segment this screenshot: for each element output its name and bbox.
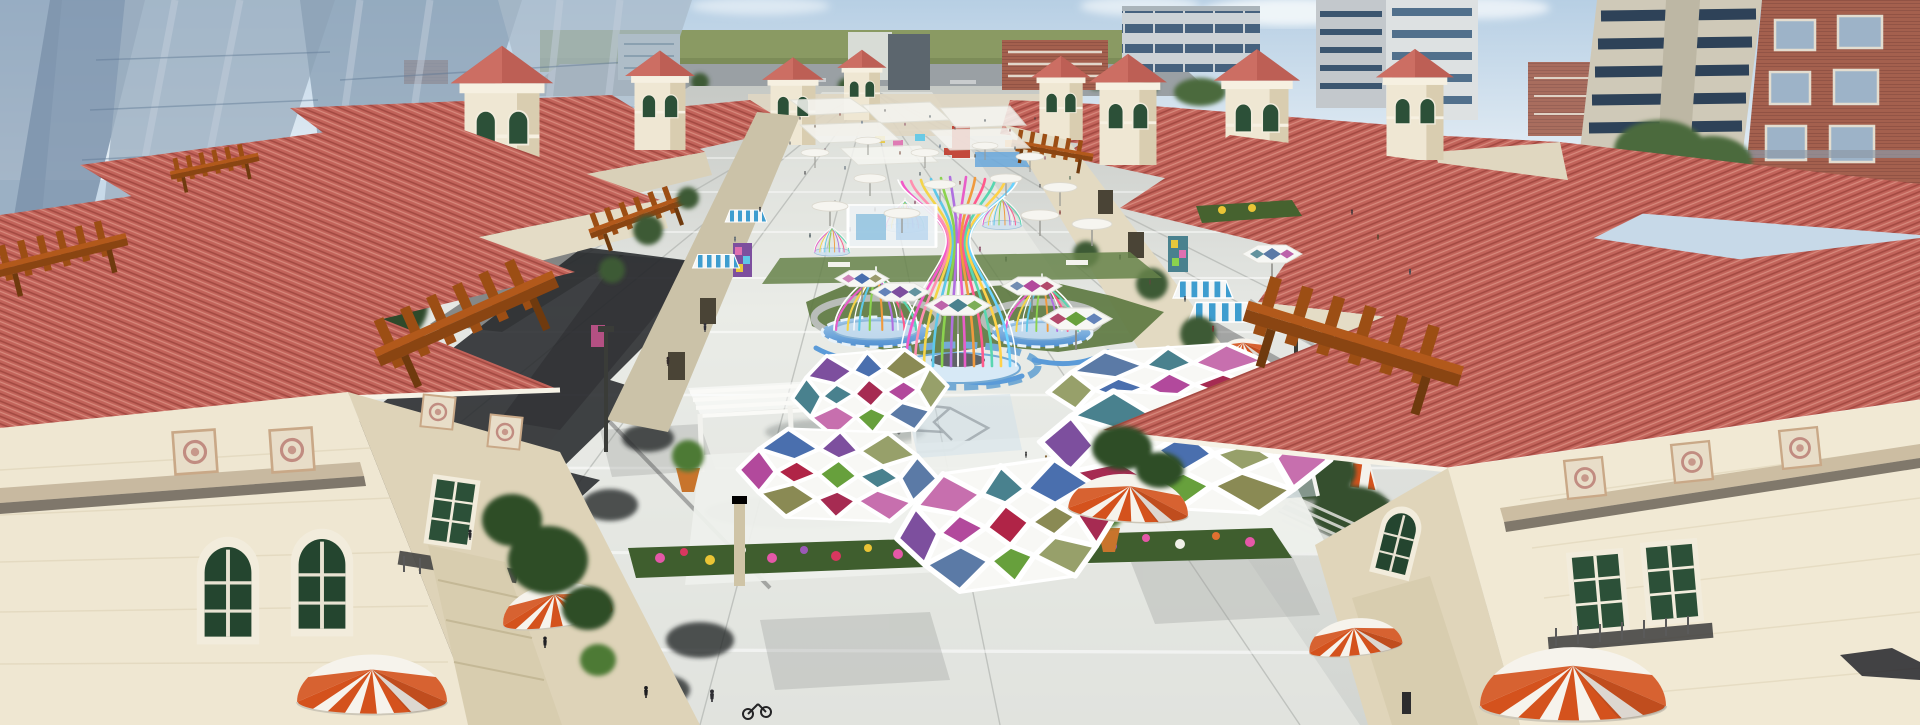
rosette-tile — [1564, 457, 1606, 499]
rosette-tile — [173, 430, 218, 475]
rosette-tile — [1671, 441, 1713, 483]
rosette-tile — [1779, 427, 1821, 469]
rosette-tile — [487, 414, 522, 449]
rosette-tile — [420, 394, 455, 429]
architectural-rendering: Aerial daytime rendering of a Mediterran… — [0, 0, 1920, 725]
plaza-rendering-canvas: Aerial daytime rendering of a Mediterran… — [0, 0, 1920, 725]
striped-awning — [1173, 281, 1233, 298]
shuttered-window — [1640, 538, 1704, 626]
arched-window — [197, 537, 259, 645]
shuttered-window — [423, 474, 480, 550]
striped-awning — [693, 255, 740, 269]
rosette-tile — [270, 428, 315, 473]
striped-awning — [725, 210, 767, 222]
arched-window — [291, 529, 353, 637]
bollard — [1402, 692, 1411, 714]
shuttered-window — [1566, 548, 1630, 636]
